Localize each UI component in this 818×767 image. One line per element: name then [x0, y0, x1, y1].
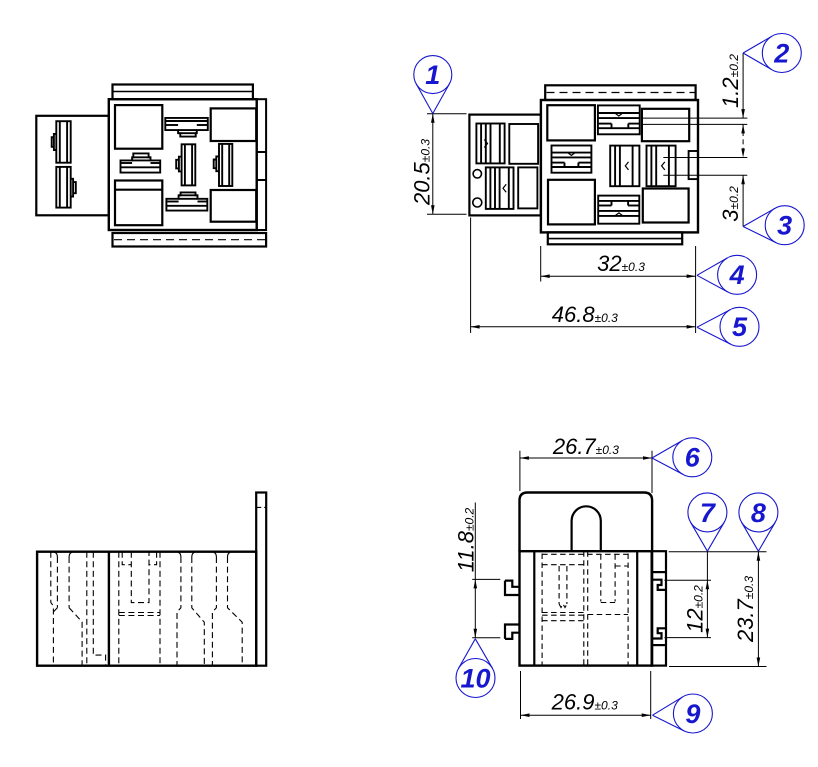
svg-text:5: 5 — [732, 312, 748, 342]
svg-text:10: 10 — [460, 663, 490, 693]
svg-text:2: 2 — [773, 38, 789, 68]
svg-text:6: 6 — [685, 443, 701, 473]
svg-text:1: 1 — [425, 60, 440, 90]
svg-text:3: 3 — [777, 211, 792, 241]
svg-text:8: 8 — [751, 498, 766, 528]
svg-text:9: 9 — [685, 699, 700, 729]
svg-text:4: 4 — [729, 260, 745, 290]
svg-text:7: 7 — [700, 498, 717, 528]
